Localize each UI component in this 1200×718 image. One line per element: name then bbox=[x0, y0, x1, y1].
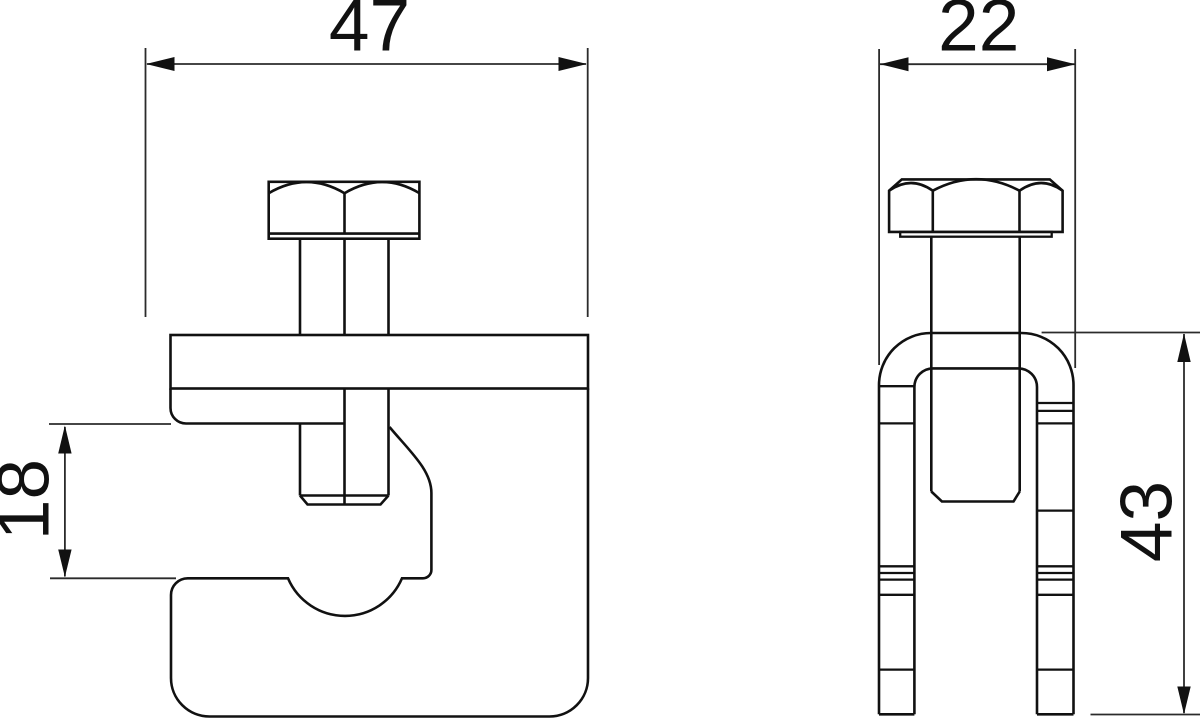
svg-text:43: 43 bbox=[1106, 481, 1187, 562]
svg-text:22: 22 bbox=[938, 0, 1019, 67]
svg-text:18: 18 bbox=[0, 459, 65, 540]
svg-text:47: 47 bbox=[329, 0, 410, 67]
